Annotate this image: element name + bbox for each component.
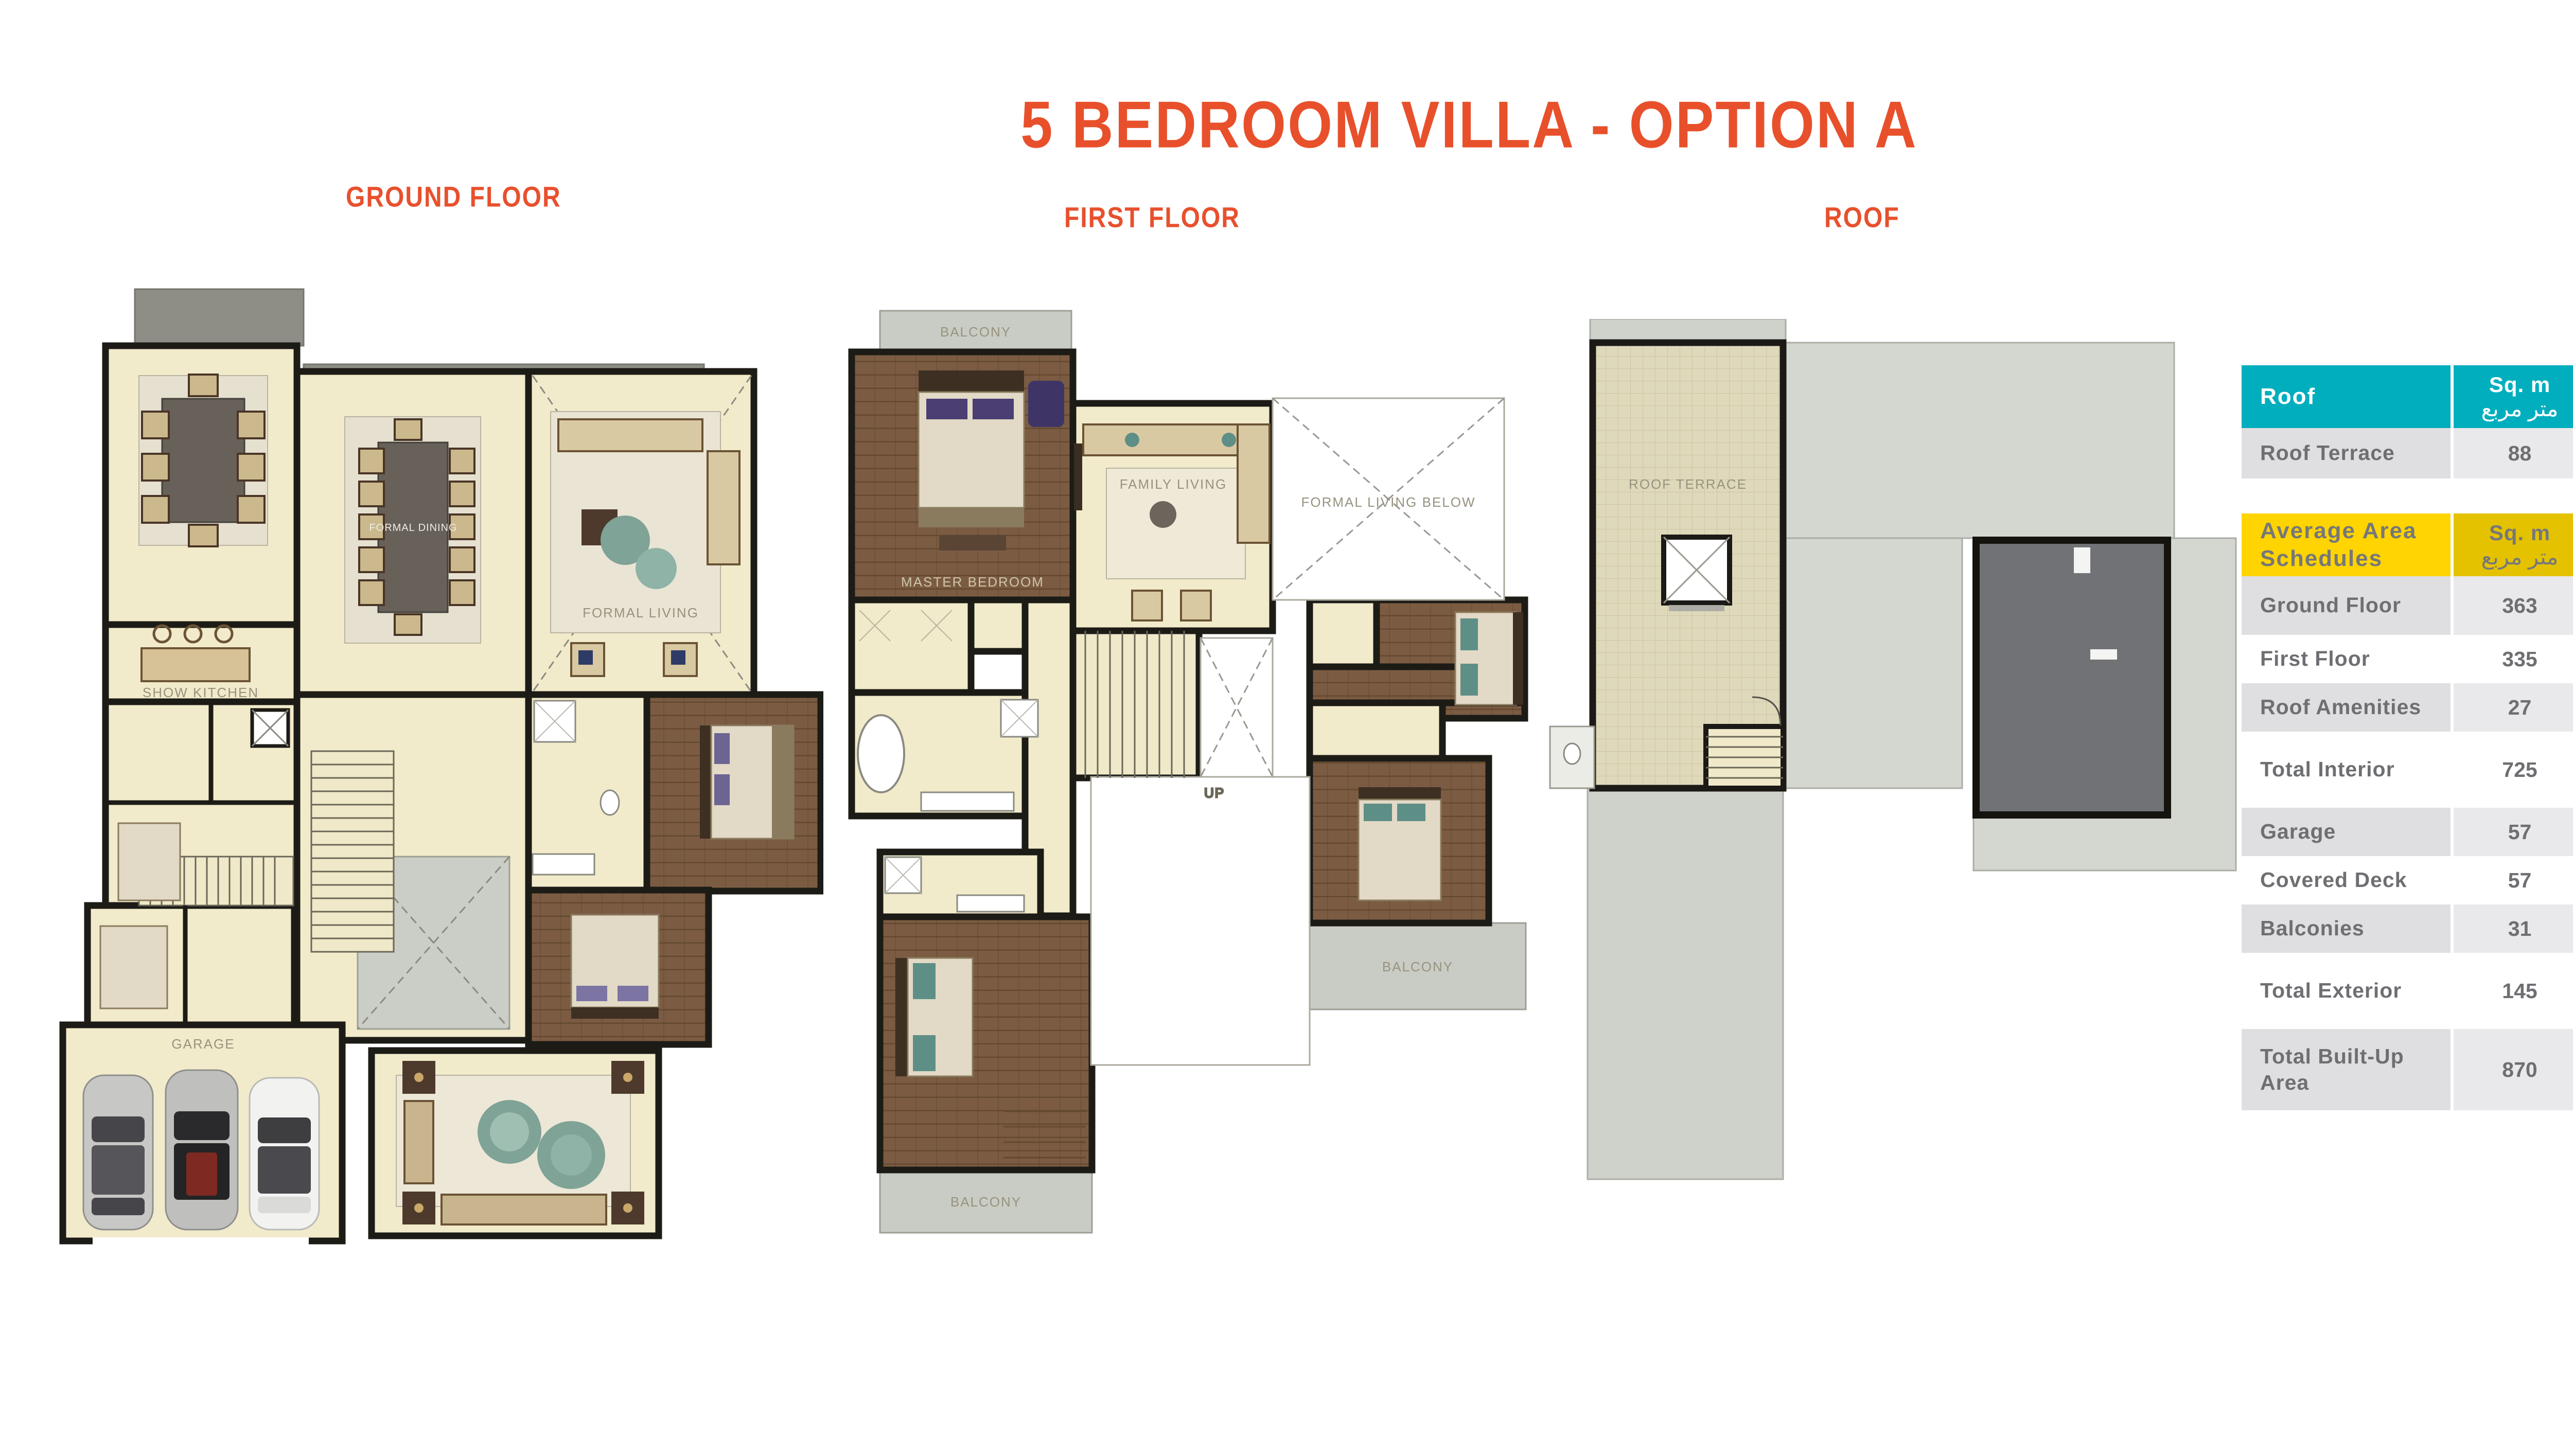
formal-dining-furniture: FORMAL DINING — [345, 417, 481, 643]
bedroom3-furniture — [1359, 787, 1441, 900]
schedule-sqm-header: Sq. m متر مربع — [2454, 513, 2573, 576]
row-label: Garage — [2242, 808, 2451, 856]
roof-label: ROOF — [1824, 202, 1900, 234]
formal-living-below-label: FORMAL LIVING BELOW — [1301, 494, 1476, 510]
formal-living-label: FORMAL LIVING — [583, 605, 699, 620]
row-sqm: 57 — [2454, 808, 2573, 856]
sqm-ar: متر مربع — [2481, 545, 2559, 569]
roof-row-label: Roof Terrace — [2242, 428, 2451, 478]
schedule-table: Average Area Schedules Sq. m متر مربع Sq… — [2242, 513, 2573, 1110]
first-floor-label: FIRST FLOOR — [1064, 202, 1240, 234]
page-title: 5 BEDROOM VILLA - OPTION A — [0, 86, 2573, 163]
row-sqm: 27 — [2454, 683, 2573, 732]
row-label: Total Interior — [2242, 732, 2451, 808]
majlis-furniture — [396, 1061, 644, 1224]
ground-bedroom-bottom — [571, 915, 659, 1019]
up-label: UP — [1204, 785, 1225, 801]
sqm-ar: متر مربع — [2481, 397, 2559, 421]
bedroom2-furniture — [1455, 612, 1523, 705]
row-label: Covered Deck — [2242, 856, 2451, 904]
brochure-page: 5 BEDROOM VILLA - OPTION A GROUND FLOOR … — [0, 0, 2573, 1456]
car-white — [250, 1078, 319, 1230]
garage-door-opening — [93, 1237, 309, 1245]
row-sqm: 363 — [2454, 576, 2573, 635]
roof-plan: ROOF TERRACE — [1544, 319, 2244, 1235]
ground-floor-plan: SHOW KITCHEN FORMAL DINING — [57, 288, 823, 1250]
family-living-label: FAMILY LIVING — [1120, 476, 1227, 492]
row-sqm: 145 — [2454, 953, 2573, 1029]
ground-floor-label: GROUND FLOOR — [346, 181, 561, 214]
car-dark — [166, 1070, 238, 1230]
roof-terrace: ROOF TERRACE — [1593, 343, 1783, 788]
schedule-title: Average Area Schedules — [2242, 513, 2451, 576]
first-floor-plan: FORMAL LIVING BELOW UP MASTER BEDROOM — [803, 309, 1528, 1260]
roof-table-sqm-header: Sq. m متر مربع — [2454, 365, 2573, 428]
row-label: Balconies — [2242, 904, 2451, 953]
row-label: First Floor — [2242, 635, 2451, 683]
row-label: Roof Amenities — [2242, 683, 2451, 732]
roof-table: Roof Sq. m متر مربع Sq. ft قدم مربع الرو… — [2242, 365, 2573, 478]
car-silver — [83, 1075, 153, 1230]
sqm-en: Sq. m — [2489, 372, 2550, 397]
row-label: Total Built-Up Area — [2242, 1029, 2451, 1110]
balcony-label-bottom: BALCONY — [950, 1194, 1021, 1210]
garage-label: GARAGE — [171, 1036, 235, 1052]
row-sqm: 870 — [2454, 1029, 2573, 1110]
roof-row-sqm: 88 — [2454, 428, 2573, 478]
row-sqm: 335 — [2454, 635, 2573, 683]
roof-amenities-block — [1976, 540, 2167, 815]
ground-bedroom-right — [700, 725, 794, 839]
show-kitchen-label: SHOW KITCHEN — [143, 685, 259, 700]
row-sqm: 725 — [2454, 732, 2573, 808]
roof-terrace-label: ROOF TERRACE — [1629, 476, 1747, 492]
dining-room-furniture — [139, 375, 268, 546]
row-sqm: 57 — [2454, 856, 2573, 904]
sqm-en: Sq. m — [2489, 521, 2550, 545]
roof-table-title: Roof — [2242, 365, 2451, 428]
roof-wc — [1550, 726, 1594, 788]
balcony-label-right: BALCONY — [1382, 959, 1453, 974]
row-label: Total Exterior — [2242, 953, 2451, 1029]
balcony-label-top: BALCONY — [940, 324, 1011, 340]
row-label: Ground Floor — [2242, 576, 2451, 635]
row-sqm: 31 — [2454, 904, 2573, 953]
formal-dining-label: FORMAL DINING — [369, 522, 457, 534]
master-bedroom-label: MASTER BEDROOM — [901, 574, 1044, 590]
